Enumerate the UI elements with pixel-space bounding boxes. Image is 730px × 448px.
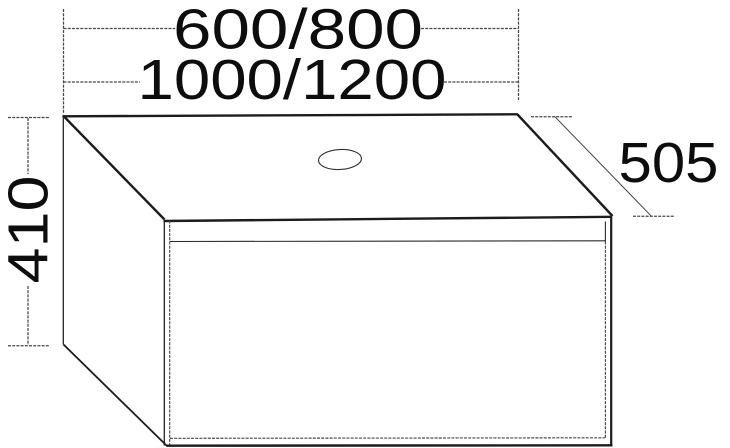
svg-text:505: 505	[619, 131, 719, 195]
svg-text:1000/1200: 1000/1200	[138, 48, 447, 112]
svg-text:410: 410	[0, 176, 61, 284]
